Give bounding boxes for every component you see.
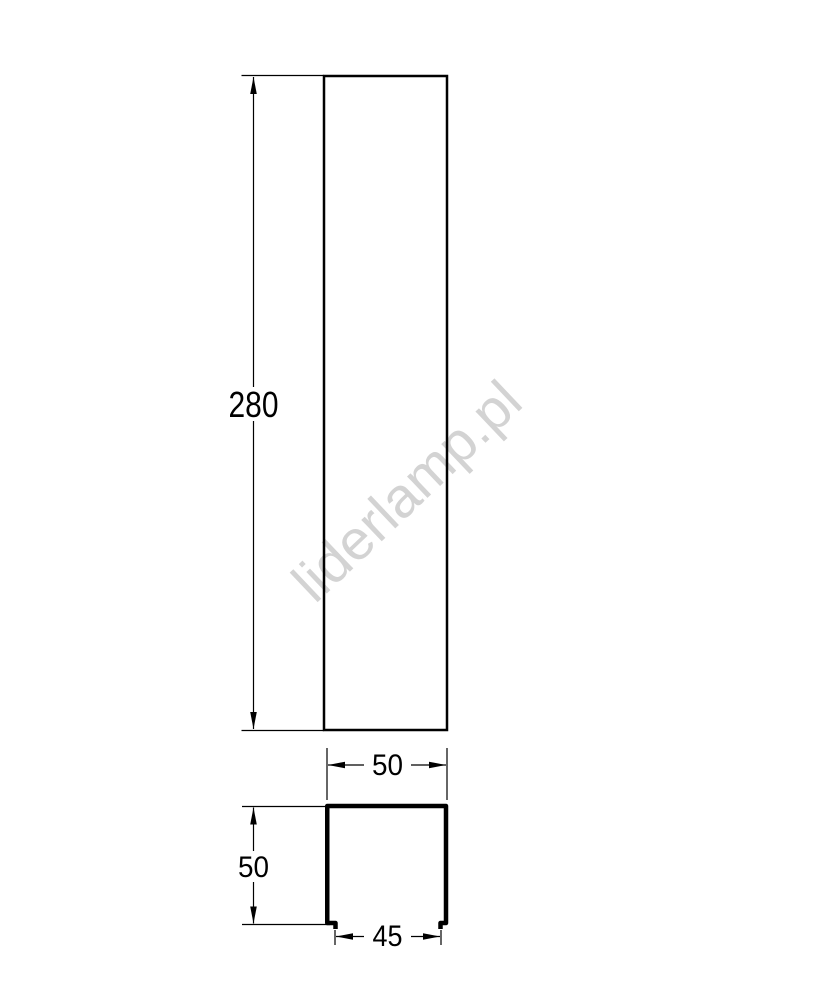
dim-50-height-label: 50 <box>238 851 269 884</box>
dim-50-width-label: 50 <box>372 749 403 782</box>
dim-280-group: 280 <box>227 76 324 731</box>
dim-280-arrow-down <box>250 712 257 729</box>
dim-280-label: 280 <box>229 384 279 425</box>
profile-technical-drawing: liderlamp.pl 280 50 <box>0 0 834 1000</box>
technical-drawing-page: liderlamp.pl 280 50 <box>0 0 834 1000</box>
dim-50-height-group: 50 <box>232 807 333 925</box>
cross-section-outline <box>327 806 446 929</box>
dim-50-height-arrow-up <box>250 808 257 825</box>
dim-280-arrow-up <box>250 77 257 94</box>
dim-50-width-arrow-left <box>328 762 345 769</box>
dim-45-arrow-right <box>423 933 440 940</box>
dim-45-arrow-left <box>336 933 353 940</box>
front-view-outline <box>324 76 447 730</box>
dim-50-height-arrow-down <box>250 907 257 924</box>
front-view <box>324 76 447 730</box>
dim-50-width-group: 50 <box>327 748 447 800</box>
dim-50-width-arrow-right <box>429 762 446 769</box>
dim-45-group: 45 <box>335 920 441 953</box>
dim-45-label: 45 <box>373 920 403 953</box>
watermark-text: liderlamp.pl <box>280 368 534 613</box>
cross-section-view <box>327 806 446 929</box>
